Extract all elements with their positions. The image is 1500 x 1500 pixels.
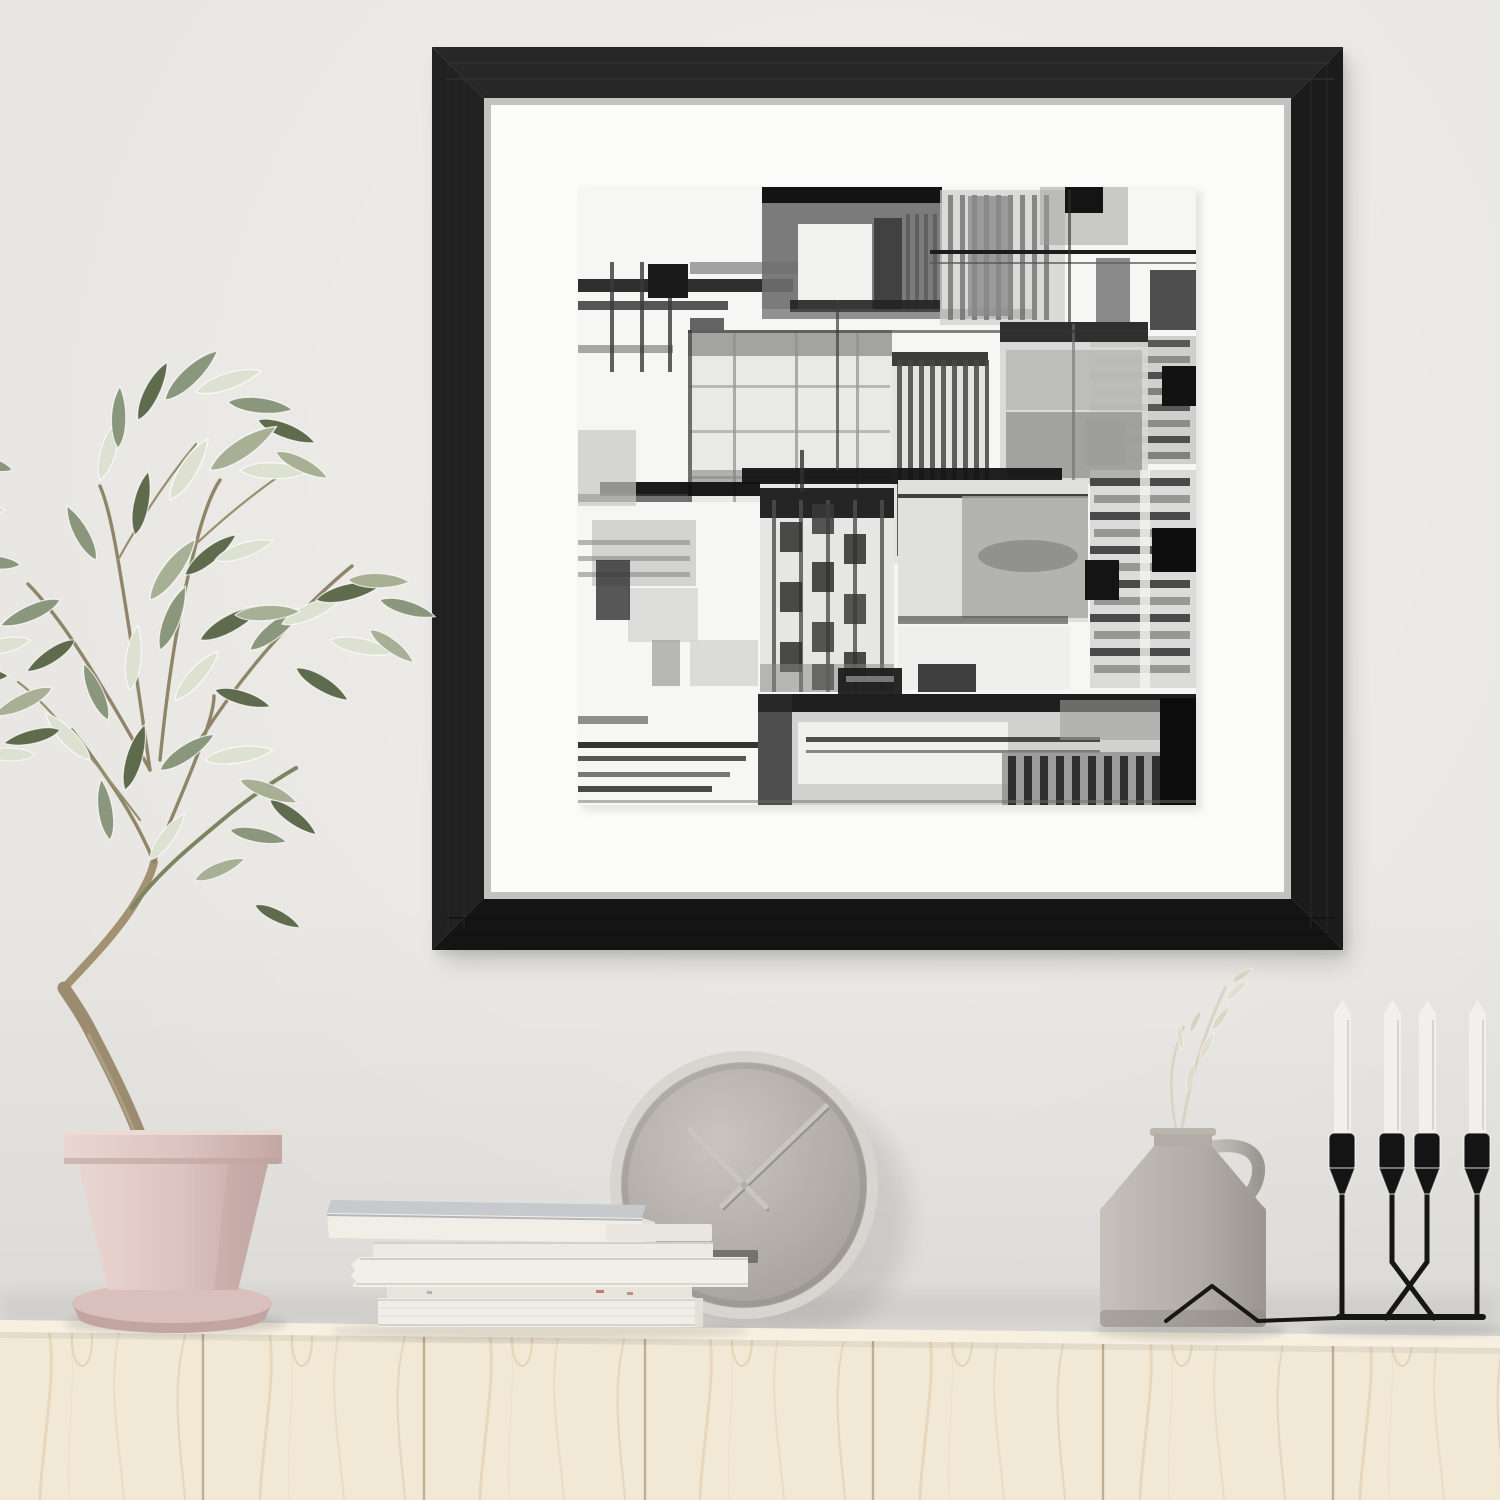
magazine-speck — [596, 1290, 604, 1293]
sideboard-front — [0, 1332, 1500, 1500]
book-medium — [373, 1242, 713, 1257]
vase-base-shade — [1100, 1310, 1266, 1327]
book-magazine — [387, 1287, 692, 1298]
lifestyle-photo: Black framed abstract ink art print in a… — [0, 0, 1500, 1500]
picture-frame — [432, 47, 1343, 950]
sideboard — [0, 1320, 1500, 1500]
magazine-speck — [627, 1292, 633, 1295]
book-thick — [351, 1257, 748, 1287]
vase-neck — [1154, 1134, 1212, 1148]
book-thin — [606, 1224, 712, 1241]
book-bottom — [378, 1298, 703, 1327]
plant-pot — [64, 1130, 282, 1333]
clock-hub — [741, 1182, 748, 1189]
